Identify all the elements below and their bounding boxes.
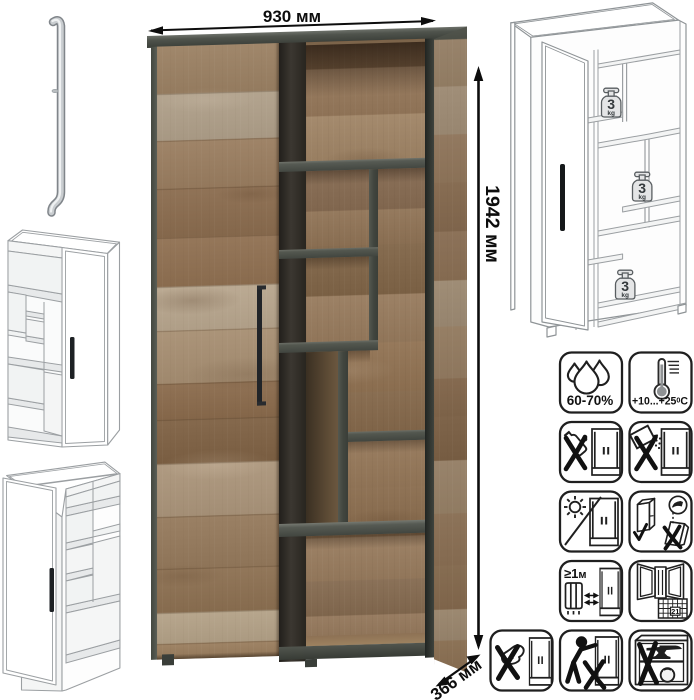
svg-text:kg: kg [607,110,615,117]
svg-text:60-70%: 60-70% [567,393,614,408]
svg-text:930 мм: 930 мм [263,7,321,26]
svg-text:366 мм: 366 мм [427,655,485,700]
svg-text:21: 21 [671,607,679,616]
svg-text:+10...+250С: +10...+250С [632,395,688,407]
svg-text:≥1м: ≥1м [564,566,587,581]
svg-text:1942 мм: 1942 мм [481,185,503,263]
